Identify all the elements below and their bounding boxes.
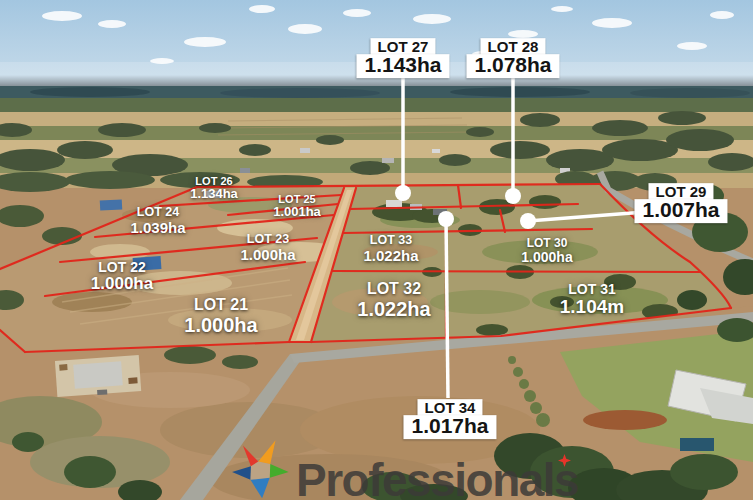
lot33-label: LOT 33 1.022ha: [363, 234, 418, 264]
lot27-marker-dot: [395, 185, 411, 201]
lot27-area: 1.143ha: [356, 54, 449, 77]
lot32-label: LOT 32 1.022ha: [357, 280, 430, 320]
logo-i-dot-star-icon: [558, 454, 571, 467]
lot29-marker-dot: [520, 213, 536, 229]
lot30-label: LOT 30 1.000ha: [521, 237, 572, 266]
lot23-label: LOT 23 1.000ha: [240, 233, 295, 263]
professionals-star-icon: [225, 433, 298, 500]
lot34-leader-line: [446, 219, 448, 398]
horizon-treeline: [0, 86, 753, 99]
professionals-logo-text: Professionals: [296, 457, 578, 500]
aerial-photo: LOT 27 1.143ha LOT 28 1.078ha LOT 29 1.0…: [0, 0, 753, 500]
professionals-logo: Professionals: [228, 436, 578, 500]
lot27-callout: LOT 27 1.143ha: [356, 38, 449, 78]
construction-site: [55, 355, 141, 398]
lot28-area: 1.078ha: [466, 54, 559, 77]
lot21-label: LOT 21 1.000ha: [184, 296, 257, 336]
lot31-label: LOT 31 1.104m: [560, 282, 624, 318]
lot29-callout: LOT 29 1.007ha: [634, 183, 727, 223]
lot28-marker-dot: [505, 188, 521, 204]
lot24-label: LOT 24 1.039ha: [130, 206, 185, 236]
lot25-label: LOT 25 1.001ha: [273, 193, 321, 219]
lot26-label: LOT 26 1.134ha: [190, 175, 238, 201]
lot34-marker-dot: [438, 211, 454, 227]
lot28-callout: LOT 28 1.078ha: [466, 38, 559, 78]
lot22-label: LOT 22 1.000ha: [91, 260, 153, 294]
lot29-area: 1.007ha: [634, 199, 727, 222]
lot34-callout: LOT 34 1.017ha: [403, 399, 496, 439]
